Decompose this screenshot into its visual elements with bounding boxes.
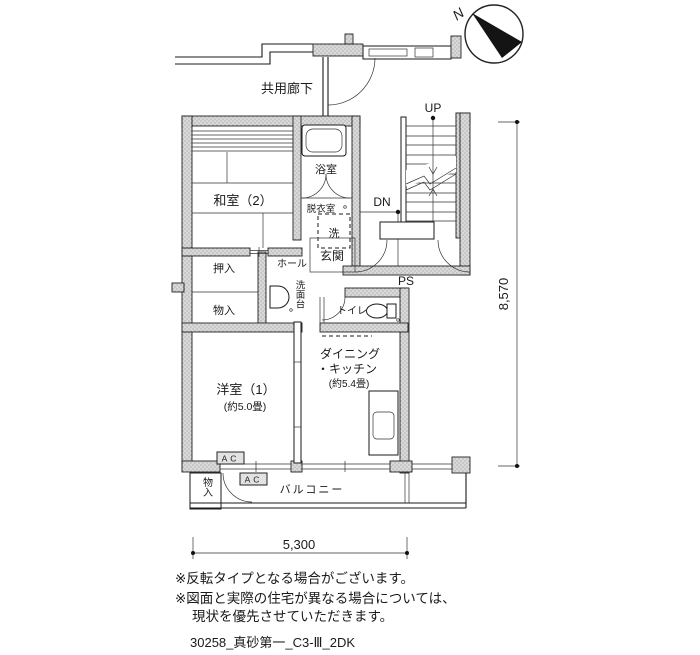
ps-label: PS <box>398 274 414 288</box>
oshiire-label: 押入 <box>213 261 235 275</box>
stairs-down-label: DN <box>373 195 390 209</box>
ac-label-1: AC <box>222 454 240 464</box>
bath-door-arc-right <box>326 174 350 198</box>
hall-label: ホール <box>277 258 307 270</box>
bath-label: 浴室 <box>315 162 337 176</box>
western1-label: 洋室（1） <box>216 382 275 397</box>
sliding-partition <box>294 322 301 463</box>
vanity-label: 洗面台 <box>294 279 306 309</box>
room-dressing: 脱衣室 洗 <box>307 203 350 248</box>
western1-size-label: (約5.0畳) <box>224 400 267 413</box>
dk-size-label: (約5.4畳) <box>329 377 370 390</box>
note-line-1: ※反転タイプとなる場合がございます。 <box>175 570 414 586</box>
width-dimension-label: 5,300 <box>283 537 316 552</box>
vanity-basin <box>270 286 289 308</box>
shoe-cabinet <box>380 222 434 239</box>
storage2-label: 物入 <box>201 476 213 497</box>
dk-label-line2: ・キッチン <box>317 362 377 376</box>
dk-label-line1: ダイニング <box>320 346 380 361</box>
entry-door-arc <box>328 58 375 105</box>
note-line-2: ※図面と実際の住宅が異なる場合については、 <box>175 591 456 606</box>
dimension-height: 8,570 <box>496 120 520 468</box>
compass-north-label: N <box>449 4 467 23</box>
hall: ホール 洗面台 <box>270 258 307 311</box>
common-corridor: 共用廊下 <box>175 34 461 116</box>
room-western1: 洋室（1） (約5.0畳) <box>216 322 301 463</box>
dressing-label: 脱衣室 <box>307 203 336 215</box>
toilet-bowl-icon <box>367 304 388 318</box>
balcony-label: バルコニー <box>280 483 345 496</box>
note-line-3: 現状を優先させていただきます。 <box>192 609 393 624</box>
stairs-up-label: UP <box>425 101 442 115</box>
notes: ※反転タイプとなる場合がございます。 ※図面と実際の住宅が異なる場合については、… <box>175 570 456 650</box>
balcony: 物入 バルコニー AC AC <box>190 452 466 509</box>
staircase: UP DN <box>360 101 456 266</box>
washitsu2-label: 和室（2） <box>213 193 272 208</box>
room-toilet: トイレ <box>320 297 399 323</box>
ac-label-2: AC <box>245 475 263 485</box>
dimension-width: 5,300 <box>191 537 409 559</box>
bathtub <box>302 125 346 156</box>
height-dimension-label: 8,570 <box>496 278 511 311</box>
window-hatch <box>192 131 293 151</box>
corridor-label: 共用廊下 <box>261 81 313 96</box>
closets: 押入 物入 <box>213 261 235 317</box>
plan-id-label: 30258_真砂第一_C3-Ⅲ_2DK <box>190 635 355 650</box>
toilet-label: トイレ <box>337 306 367 317</box>
room-dining-kitchen: ダイニング ・キッチン (約5.4畳) <box>317 346 398 455</box>
floor-plan-drawing: N 共用廊下 <box>0 0 700 650</box>
door-stop-mark <box>344 206 347 209</box>
room-bath: 浴室 <box>301 125 352 198</box>
bath-door-arc-left <box>302 174 326 198</box>
toilet-tank-icon <box>387 304 396 318</box>
genkan-label: 玄関 <box>320 248 344 263</box>
room-washitsu2: 和室（2） <box>192 131 293 248</box>
storage1-label: 物入 <box>213 303 235 317</box>
floor-plan-page: N 共用廊下 <box>0 0 700 650</box>
